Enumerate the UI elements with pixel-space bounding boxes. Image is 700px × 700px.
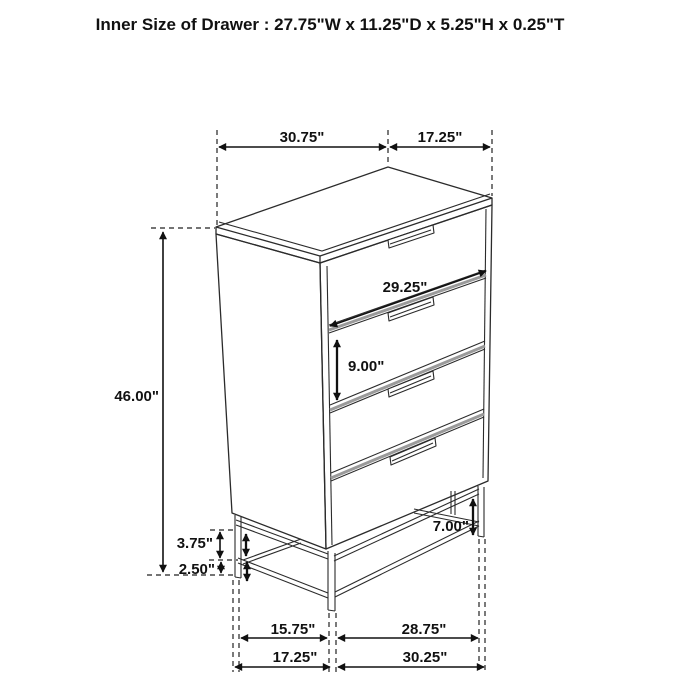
- handle3-inner-line: [390, 376, 431, 393]
- leg-front-foot: [328, 610, 335, 611]
- dim-foot-height-label: 2.50": [179, 561, 215, 578]
- dim-base-clearance-label: 7.00": [433, 518, 469, 535]
- stretcher-left-bottom: [238, 563, 328, 598]
- gap3-shade: [331, 414, 484, 478]
- dim-base-outer-depth-label: 17.25": [273, 649, 318, 666]
- diagram-title: Inner Size of Drawer : 27.75"W x 11.25"D…: [96, 15, 565, 34]
- leg-back-left-foot: [235, 577, 241, 578]
- cabinet-top-face: [216, 167, 492, 256]
- stretcher-rear-left-top: [243, 539, 301, 560]
- chest-dimension-diagram: Inner Size of Drawer : 27.75"W x 11.25"D…: [0, 0, 700, 700]
- drawer-gap-3: [331, 409, 484, 481]
- gap3-top-line: [331, 409, 484, 473]
- gap3-bottom-line: [331, 417, 484, 481]
- cabinet-side-panel: [216, 234, 326, 549]
- dimension-arrows: [163, 147, 490, 667]
- dim-drawer-width-label: 29.25": [383, 279, 428, 296]
- rail-left-bottom: [236, 525, 328, 559]
- gap2-shade: [330, 346, 485, 410]
- stretcher-rear-left-bottom: [243, 543, 301, 564]
- dim-top-width-label: 30.75": [280, 129, 325, 146]
- front-frame-right-edge: [483, 209, 486, 478]
- dim-base-inner-width-label: 28.75": [402, 621, 447, 638]
- dim-base-inner-depth-label: 15.75": [271, 621, 316, 638]
- front-frame-left-edge: [327, 266, 332, 545]
- stretcher-left-top: [238, 558, 328, 593]
- rail-left-top: [236, 520, 328, 554]
- drawer-gap-2: [330, 341, 485, 413]
- handle4-inner-line: [392, 443, 433, 461]
- cabinet-top-slab-edge: [216, 205, 492, 263]
- dim-drawer-height-label: 9.00": [348, 358, 384, 375]
- dimension-labels: 30.75" 17.25" 46.00" 29.25" 9.00" 3.75" …: [114, 129, 469, 666]
- base-frame: [235, 486, 484, 611]
- dim-top-depth-label: 17.25": [418, 129, 463, 146]
- leg-right-foot: [478, 536, 484, 537]
- dim-frame-height-label: 3.75": [177, 535, 213, 552]
- dim-base-outer-width-label: 30.25": [403, 649, 448, 666]
- cabinet-top-inner-edge: [219, 194, 490, 251]
- dim-overall-height-label: 46.00": [114, 388, 159, 405]
- drawer-handle-1: [388, 225, 434, 248]
- dimension-diagram-page: Inner Size of Drawer : 27.75"W x 11.25"D…: [0, 0, 700, 700]
